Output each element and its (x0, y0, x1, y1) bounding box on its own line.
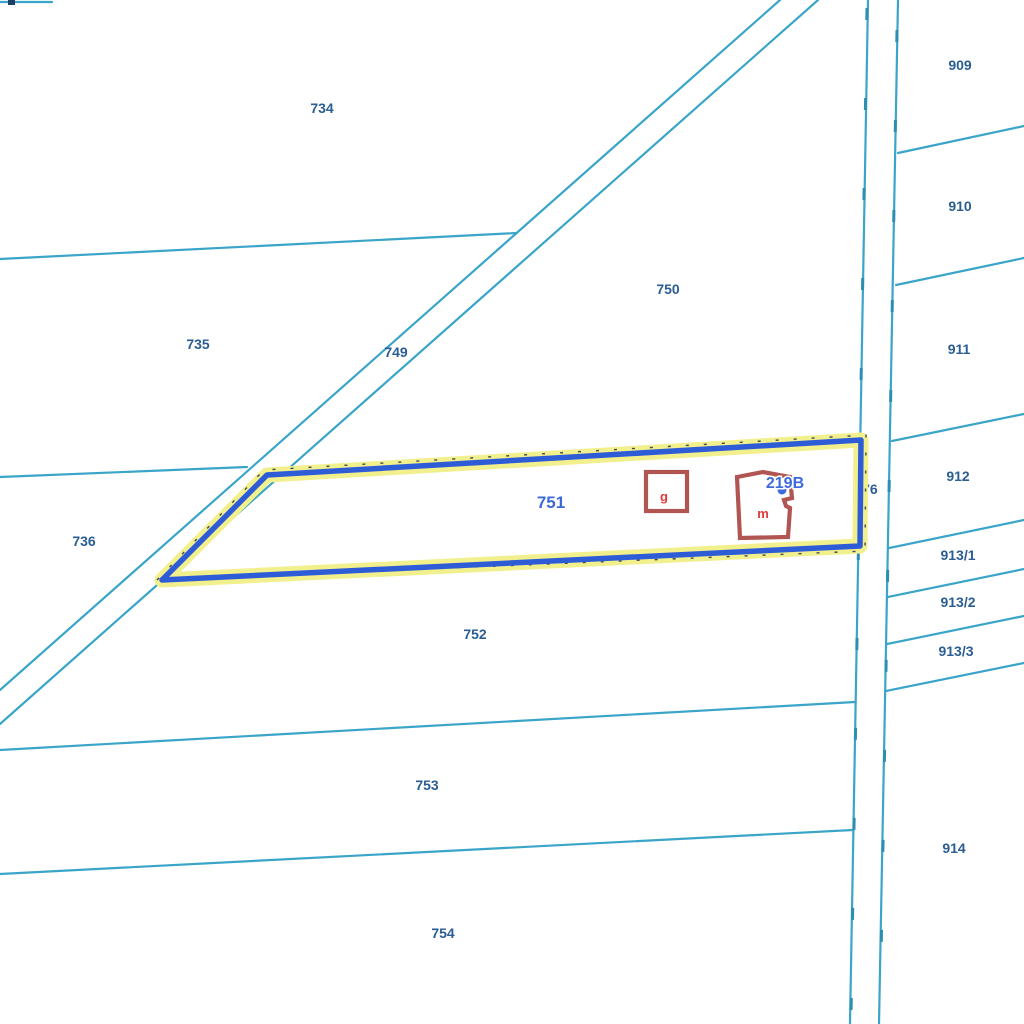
parcel-label-913-3: 913/3 (938, 643, 973, 659)
boundary-910-911 (896, 258, 1024, 285)
boundary-913-3-914 (886, 663, 1024, 691)
building-m-label: m (757, 506, 769, 521)
building-g-label: g (660, 489, 668, 504)
parcel-label-913-1: 913/1 (940, 547, 975, 563)
parcel-boundary-lines (0, 0, 1024, 1024)
parcel-label-754: 754 (431, 925, 455, 941)
boundary-913-1-913-2 (888, 569, 1024, 597)
parcel-label-734: 734 (310, 100, 334, 116)
strip-776-right-edge (879, 0, 898, 1024)
boundary-913-2-913-3 (887, 616, 1024, 644)
cadastral-map-canvas: 734 735 736 749 750 752 753 754 776 909 … (0, 0, 1024, 1024)
boundary-734-735 (0, 233, 517, 259)
parcel-label-753: 753 (415, 777, 439, 793)
parcel-label-751: 751 (537, 493, 565, 512)
parcel-number-labels: 734 735 736 749 750 752 753 754 776 909 … (72, 57, 975, 941)
parcel-label-913-2: 913/2 (940, 594, 975, 610)
boundary-735-736 (0, 467, 247, 477)
parcel-label-736: 736 (72, 533, 96, 549)
address-point-219b[interactable]: 219B (766, 475, 804, 495)
boundary-911-912 (892, 414, 1024, 441)
map-edge-marker (8, 0, 15, 5)
parcel-label-912: 912 (946, 468, 970, 484)
map-viewport[interactable]: 734 735 736 749 750 752 753 754 776 909 … (0, 0, 1024, 1024)
parcel-label-909: 909 (948, 57, 972, 73)
parcel-label-749: 749 (384, 344, 408, 360)
boundary-753-754 (0, 830, 853, 874)
parcel-label-752: 752 (463, 626, 487, 642)
parcel-label-735: 735 (186, 336, 210, 352)
road-749-right-edge (0, 0, 818, 724)
parcel-label-914: 914 (942, 840, 966, 856)
parcel-label-750: 750 (656, 281, 680, 297)
parcel-label-910: 910 (948, 198, 972, 214)
address-point-label: 219B (766, 475, 804, 492)
parcel-label-911: 911 (948, 341, 971, 357)
boundary-912-913-1 (889, 520, 1024, 548)
boundary-909-910 (898, 126, 1024, 153)
boundary-752-753 (0, 702, 855, 750)
